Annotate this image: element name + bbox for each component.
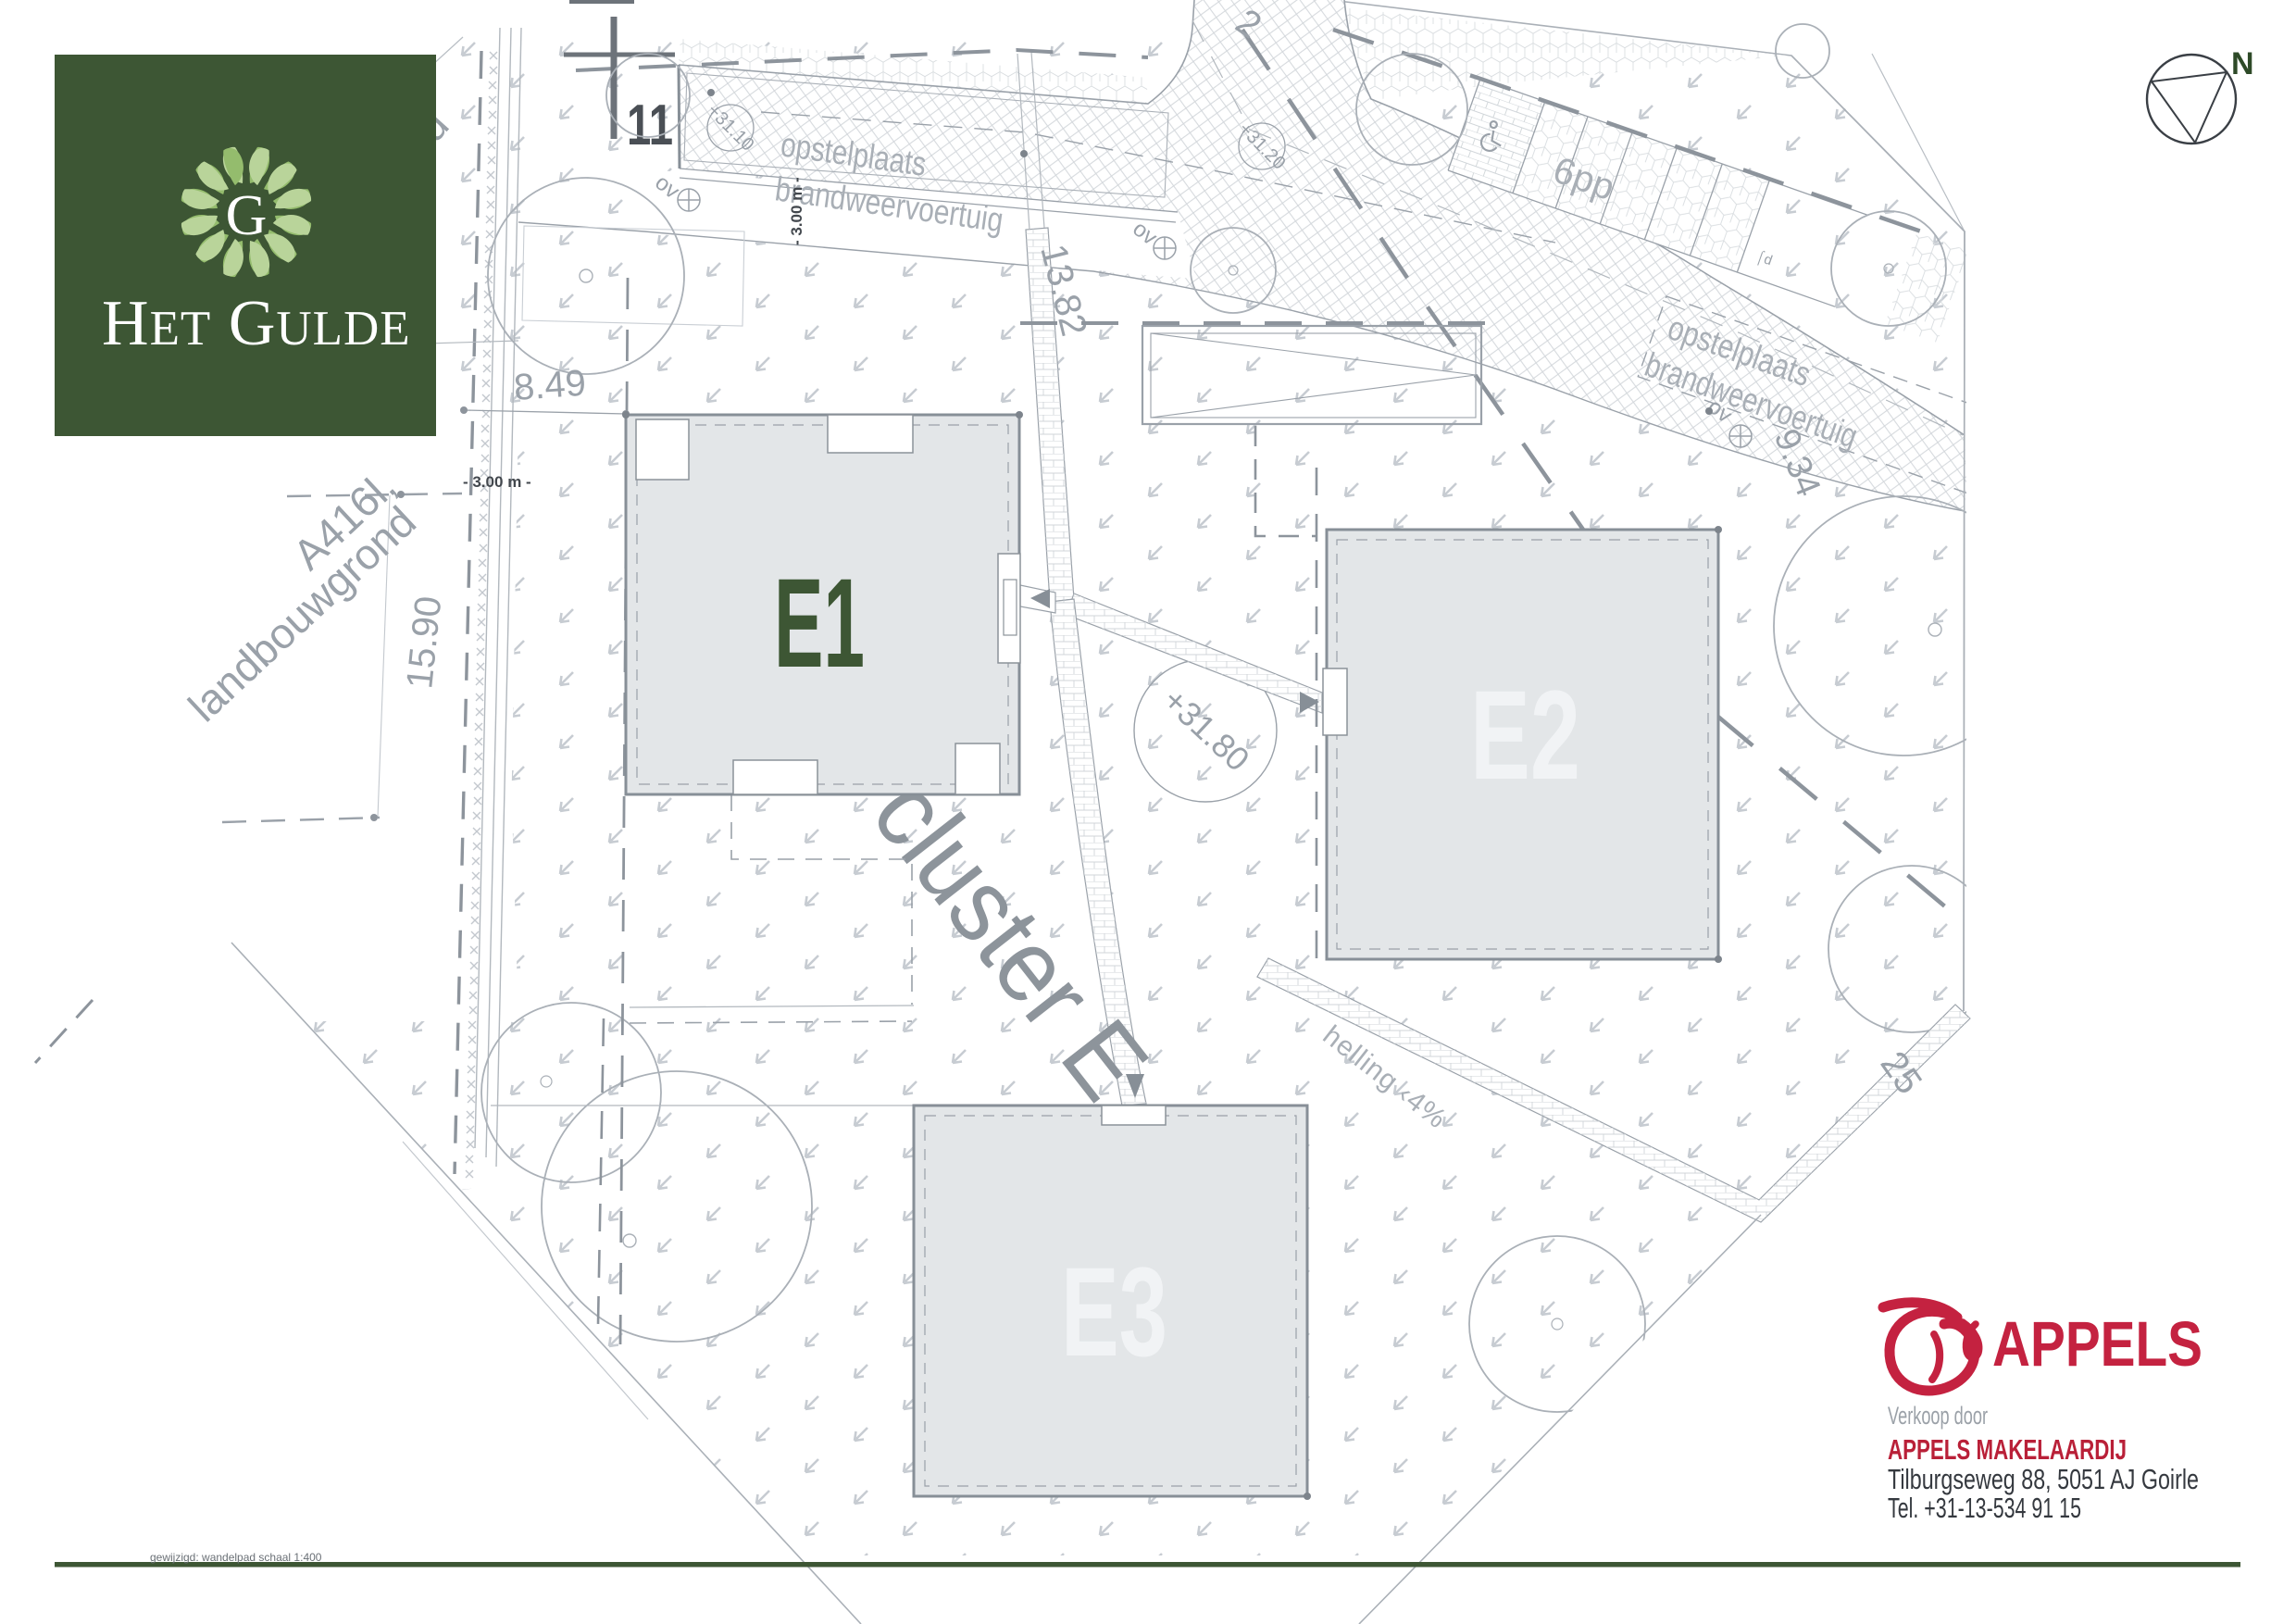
svg-text:8.49: 8.49 [513,363,588,408]
svg-text:gewijzigd: wandelpad schaa: gewijzigd: wandelpad schaal 1:400 [150,1551,322,1564]
svg-text:N: N [2231,46,2254,81]
svg-text:Tel. +31-13-534 91 15: Tel. +31-13-534 91 15 [1888,1492,2081,1524]
svg-text:Tilburgseweg 88, 5051 AJ Goirl: Tilburgseweg 88, 5051 AJ Goirle [1888,1463,2199,1495]
svg-text:APPELS MAKELAARDIJ: APPELS MAKELAARDIJ [1888,1433,2127,1466]
svg-text:- 3.00 m -: - 3.00 m - [788,177,805,245]
svg-text:E2: E2 [1470,665,1580,806]
svg-text:11: 11 [627,94,673,157]
svg-text:- 3.00 m -: - 3.00 m - [463,473,531,491]
svg-text:Verkoop door: Verkoop door [1888,1402,1988,1430]
svg-text:G: G [226,184,268,247]
svg-text:E3: E3 [1061,1242,1167,1383]
svg-text:E1: E1 [774,553,865,694]
svg-text:APPELS: APPELS [1992,1308,2202,1380]
